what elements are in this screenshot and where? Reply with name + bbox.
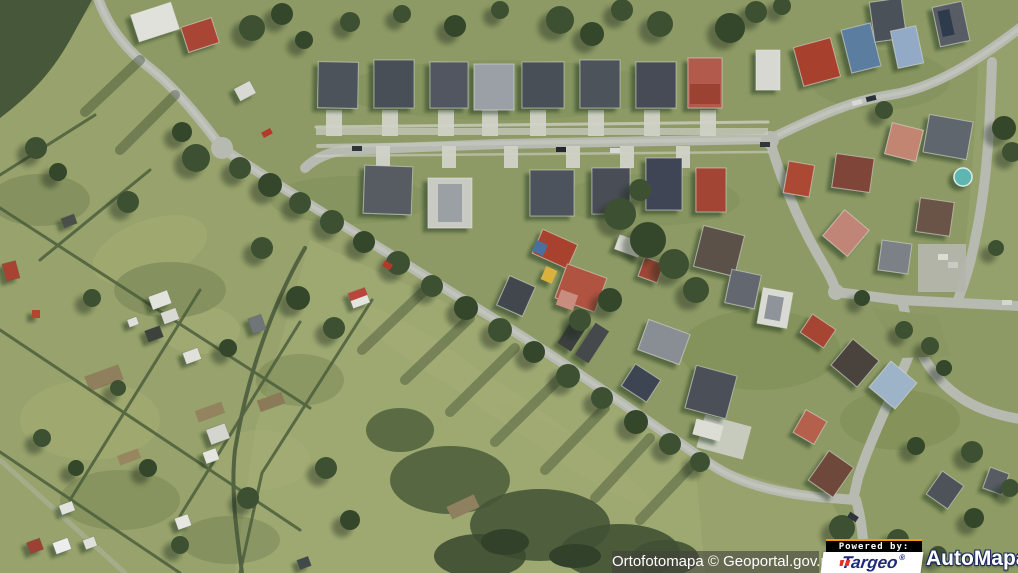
automapa-logo[interactable]: AutoMapa®: [926, 547, 1018, 571]
aerial-imagery[interactable]: [0, 0, 1018, 573]
powered-by-strip: Powered by:: [826, 539, 922, 553]
automapa-wordmark: AutoMapa: [926, 547, 1018, 570]
attribution-text: Ortofotomapa © Geoportal.gov.pl: [612, 553, 832, 570]
powered-by-label: Powered by:: [839, 542, 910, 552]
attribution-bar: Ortofotomapa © Geoportal.gov.pl: [612, 551, 819, 573]
targeo-logo[interactable]: Targeo ®: [821, 552, 924, 573]
map-viewport[interactable]: Ortofotomapa © Geoportal.gov.pl Powered …: [0, 0, 1018, 573]
targeo-registered-mark: ®: [899, 554, 906, 562]
